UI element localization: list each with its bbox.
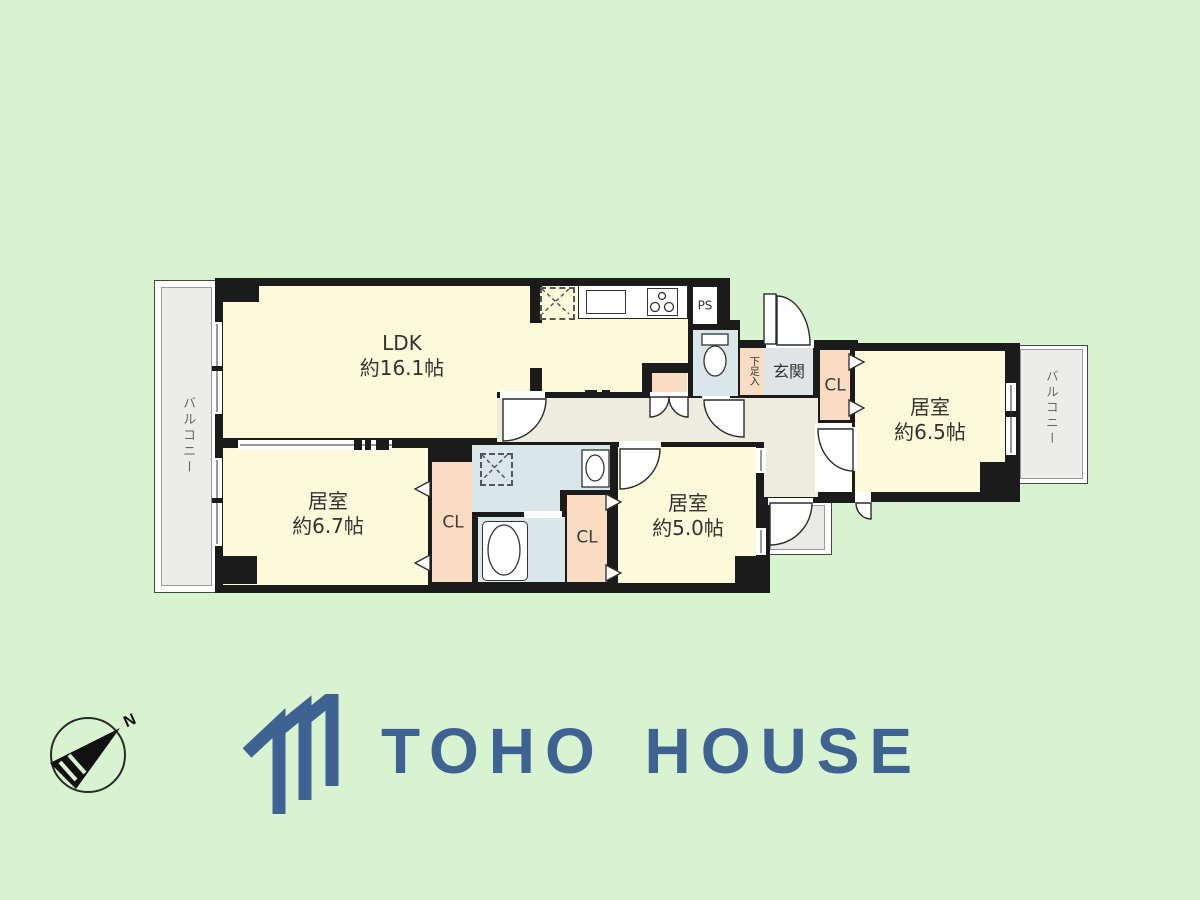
door-opening — [849, 427, 857, 471]
room-size: 約16.1帖 — [360, 356, 445, 381]
washing-machine-space — [480, 453, 513, 486]
closet-center-label: CL — [576, 527, 597, 548]
window — [1006, 383, 1016, 411]
door-opening — [855, 492, 871, 503]
door-opening — [500, 391, 545, 398]
door-opening — [650, 392, 688, 399]
room-name: LDK — [360, 331, 445, 356]
window — [756, 528, 766, 555]
service-alcove-floor — [770, 505, 825, 550]
pipe-space-label: PS — [698, 299, 713, 314]
compass: N — [40, 692, 155, 812]
wall-step — [223, 556, 257, 584]
closet-left-label: CL — [442, 512, 463, 533]
logo-text: TOHO HOUSE — [381, 714, 922, 788]
balcony-right-label: バルコニー — [1043, 369, 1059, 447]
stove — [647, 288, 678, 316]
door-opening — [524, 511, 562, 518]
wall-step — [980, 462, 1006, 492]
hallway-door-pocket — [815, 423, 852, 492]
toilet-room — [693, 330, 738, 396]
kitchen-sink — [586, 290, 626, 314]
entrance-door-arc — [777, 296, 810, 345]
window — [756, 448, 766, 473]
room-label-ldk: LDK 約16.1帖 — [360, 331, 445, 381]
room-label-southwest: 居室 約6.7帖 — [292, 489, 364, 539]
hallway-branch — [764, 398, 818, 497]
door-opening — [766, 340, 814, 348]
wall-step — [735, 556, 757, 583]
door-opening — [768, 498, 813, 505]
closet-right-label: CL — [824, 375, 845, 396]
room-name: 居室 — [292, 489, 364, 514]
room-size: 約6.7帖 — [292, 514, 364, 539]
window — [212, 322, 222, 414]
window — [1006, 417, 1016, 455]
room-label-east: 居室 約6.5帖 — [894, 395, 966, 445]
wall-step — [215, 278, 259, 302]
room-name: 居室 — [894, 395, 966, 420]
north-label: N — [121, 711, 138, 731]
door-opening — [702, 396, 730, 404]
small-door-arc — [856, 503, 871, 519]
refrigerator-space — [540, 287, 575, 320]
logo-mark-icon — [243, 694, 373, 816]
room-size: 約5.0帖 — [652, 516, 724, 541]
entrance-label: 玄関 — [773, 362, 805, 382]
floor-plan-page: LDK 約16.1帖 居室 約6.7帖 居室 約5.0帖 居室 約6.5帖 CL… — [0, 0, 1200, 900]
balcony-left-label: バルコニー — [179, 396, 195, 476]
door-opening — [619, 441, 661, 449]
shoe-cabinet-label: 下足入 — [746, 356, 759, 386]
bathtub — [482, 521, 528, 581]
sliding-partition — [238, 440, 392, 450]
room-size: 約6.5帖 — [894, 420, 966, 445]
room-name: 居室 — [652, 491, 724, 516]
room-label-south: 居室 約5.0帖 — [652, 491, 724, 541]
entrance-door-leaf — [764, 294, 776, 344]
window — [212, 458, 222, 546]
